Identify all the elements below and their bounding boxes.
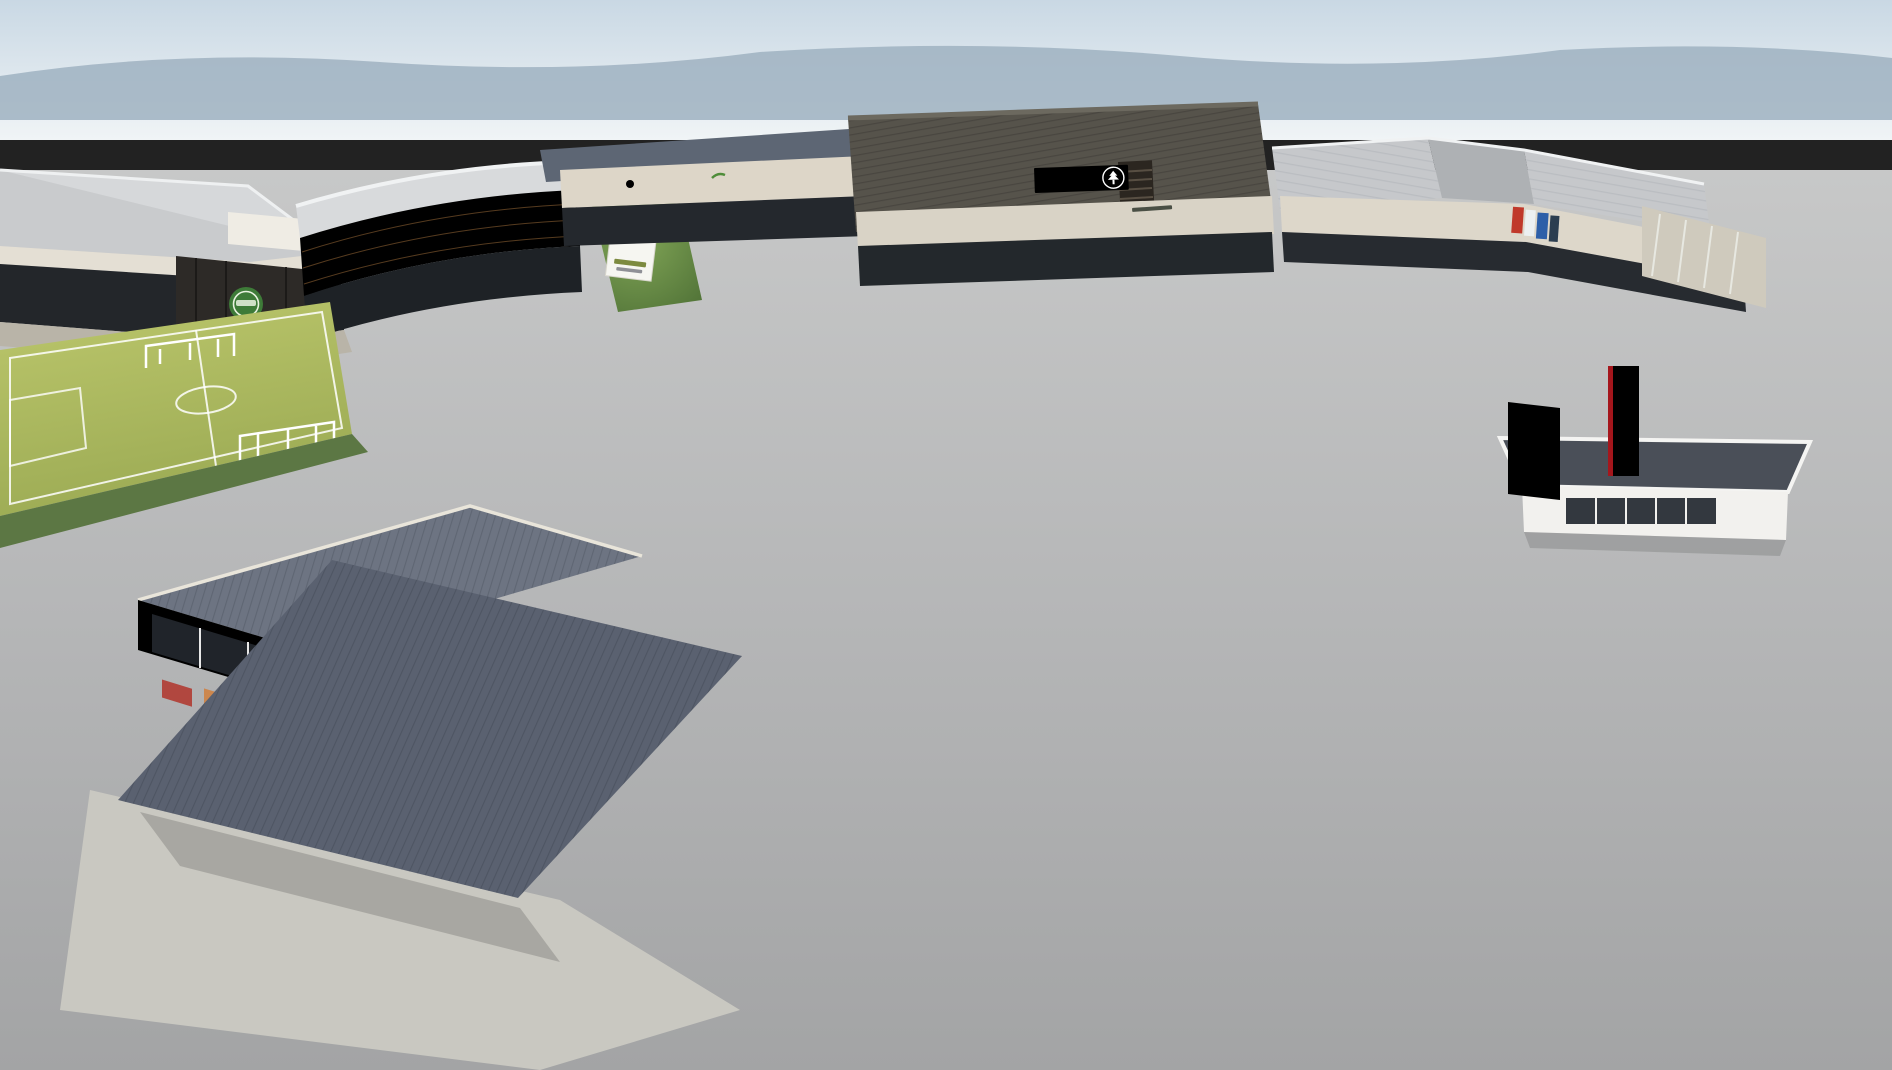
spar-store [848, 104, 1274, 286]
kfc-windows [1566, 498, 1716, 524]
spar-sign [1034, 165, 1129, 193]
kfc-colonel-wall [1508, 402, 1560, 500]
kfc-pylon-sign [1608, 366, 1639, 476]
aerial-render [0, 0, 1892, 1070]
scene-svg [0, 0, 1892, 1070]
shops-strip [540, 128, 870, 246]
nutrive-leaf-icon [626, 180, 634, 188]
